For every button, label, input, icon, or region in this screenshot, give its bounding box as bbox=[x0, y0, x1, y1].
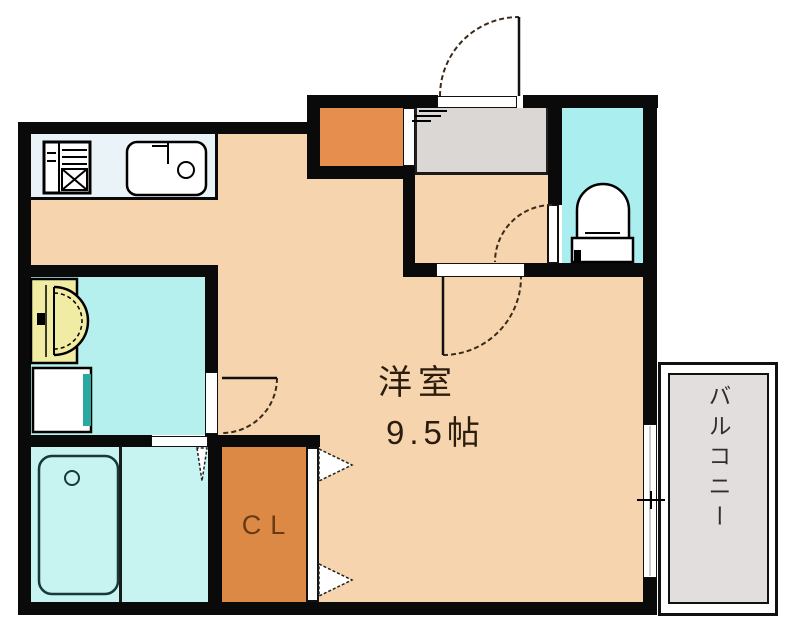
balcony-label: バルコニー bbox=[676, 384, 760, 608]
toilet-floor bbox=[562, 108, 643, 263]
corridor-floor bbox=[307, 179, 403, 265]
washroom-door-opening bbox=[205, 372, 218, 434]
wall-top-right-of-door bbox=[523, 95, 658, 108]
main-room-door-threshold bbox=[436, 263, 525, 277]
wall-genkan-bottom bbox=[307, 166, 415, 179]
genkan-step-strip bbox=[403, 108, 415, 166]
toilet-door-leaf bbox=[547, 204, 559, 264]
washroom-floor bbox=[31, 277, 205, 435]
bathtub-divider-line bbox=[119, 447, 122, 602]
bathroom-door-threshold bbox=[151, 436, 208, 447]
balcony-window bbox=[643, 424, 657, 578]
entrance-hall-floor bbox=[415, 108, 548, 175]
wall-washroom-bottom bbox=[18, 435, 152, 447]
wall-left bbox=[18, 122, 31, 615]
wall-closet-left bbox=[208, 447, 222, 602]
entrance-door-threshold bbox=[437, 96, 517, 108]
closet-label: CL bbox=[222, 510, 308, 541]
entrance-genkan bbox=[320, 108, 403, 166]
main-room-size: 9.5帖 bbox=[386, 416, 485, 449]
wall-toilet-left bbox=[548, 95, 562, 205]
wall-hall-west bbox=[403, 166, 415, 277]
entrance-door-arc-icon bbox=[440, 17, 519, 96]
wall-hall-south-left bbox=[403, 263, 438, 277]
floor-plan: 洋室 9.5帖 CL バルコニー bbox=[0, 0, 800, 644]
main-room-name: 洋室 bbox=[378, 366, 485, 400]
wall-top-left-of-door bbox=[307, 95, 438, 108]
wall-closet-top bbox=[205, 435, 320, 447]
wall-bottom bbox=[18, 602, 657, 615]
hall-step-line bbox=[415, 172, 548, 175]
main-room-label: 洋室 9.5帖 bbox=[378, 366, 485, 449]
kitchen-counter bbox=[31, 134, 218, 200]
wall-hall-south-right bbox=[523, 263, 657, 277]
balcony-label-text: バルコニー bbox=[701, 384, 735, 608]
wall-kitchen-top bbox=[18, 122, 320, 134]
hall-floor bbox=[415, 175, 548, 263]
wall-washroom-right-upper bbox=[205, 265, 218, 373]
wall-washroom-top bbox=[18, 265, 218, 277]
wall-right-upper bbox=[643, 95, 657, 424]
